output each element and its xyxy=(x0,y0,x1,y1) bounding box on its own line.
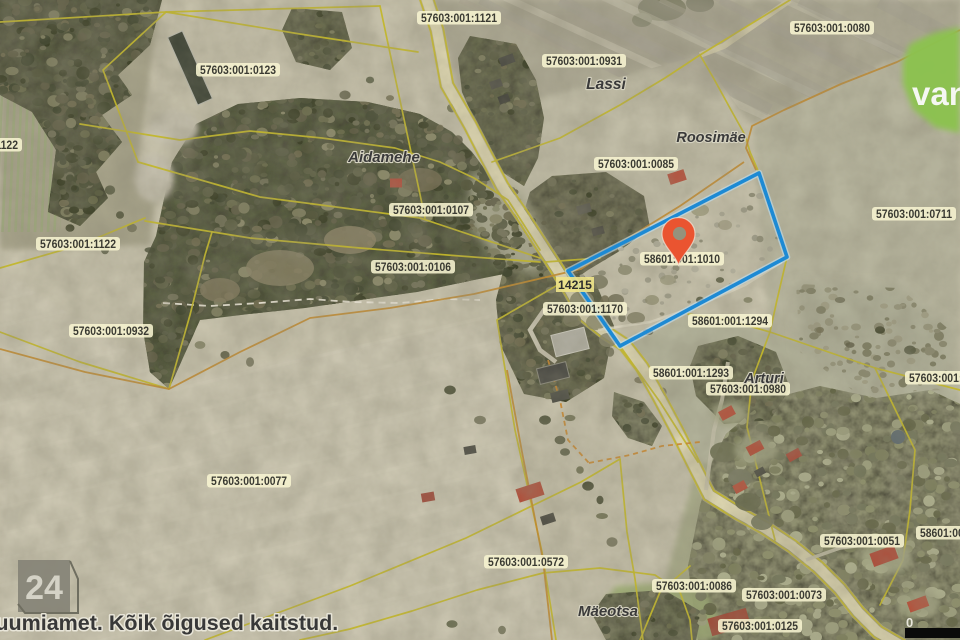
svg-text:Roosimäe: Roosimäe xyxy=(676,130,745,146)
svg-text:57603:001:0086: 57603:001:0086 xyxy=(656,579,732,593)
svg-text:Mäeotsa: Mäeotsa xyxy=(578,603,638,620)
svg-text:57603:001:0125: 57603:001:0125 xyxy=(722,619,798,633)
svg-text:57603:001:0123: 57603:001:0123 xyxy=(200,63,276,77)
svg-text:57603:001:0931: 57603:001:0931 xyxy=(546,54,622,68)
svg-text:57603:001:0080: 57603:001:0080 xyxy=(794,21,870,35)
svg-text:57603:001:1170: 57603:001:1170 xyxy=(547,302,623,316)
svg-text:57603:001:0073: 57603:001:0073 xyxy=(746,588,822,602)
svg-text:58601:001:1293: 58601:001:1293 xyxy=(653,366,729,380)
svg-text:57603:001:0932: 57603:001:0932 xyxy=(73,324,149,338)
svg-text:Arturi: Arturi xyxy=(743,371,784,387)
svg-text:57603:001:0077: 57603:001:0077 xyxy=(211,474,287,488)
svg-text:ruumiamet. Kõik õigused kaitst: ruumiamet. Kõik õigused kaitstud. xyxy=(0,611,338,635)
svg-text:Lassi: Lassi xyxy=(586,76,626,93)
svg-text:57603:001:1122: 57603:001:1122 xyxy=(0,138,18,152)
svg-text:58601:001:1293: 58601:001:1293 xyxy=(920,526,960,540)
svg-text:57603:001:1121: 57603:001:1121 xyxy=(421,11,497,25)
svg-text:58601:001:1294: 58601:001:1294 xyxy=(692,314,768,328)
svg-text:van: van xyxy=(912,75,960,112)
svg-text:Aidamehe: Aidamehe xyxy=(347,149,420,166)
svg-text:57603:001:0711: 57603:001:0711 xyxy=(876,207,952,221)
svg-text:57603:001:0051: 57603:001:0051 xyxy=(824,534,900,548)
svg-text:57603:001:0106: 57603:001:0106 xyxy=(375,260,451,274)
svg-text:57603:001:0572: 57603:001:0572 xyxy=(488,555,564,569)
svg-text:57603:001:1122: 57603:001:1122 xyxy=(40,237,116,251)
svg-text:57603:001:0711: 57603:001:0711 xyxy=(909,371,960,385)
svg-text:0: 0 xyxy=(906,615,913,630)
svg-text:24: 24 xyxy=(25,569,63,607)
svg-text:57603:001:0107: 57603:001:0107 xyxy=(393,203,469,217)
svg-text:14215: 14215 xyxy=(558,278,592,292)
svg-text:57603:001:0085: 57603:001:0085 xyxy=(598,157,674,171)
